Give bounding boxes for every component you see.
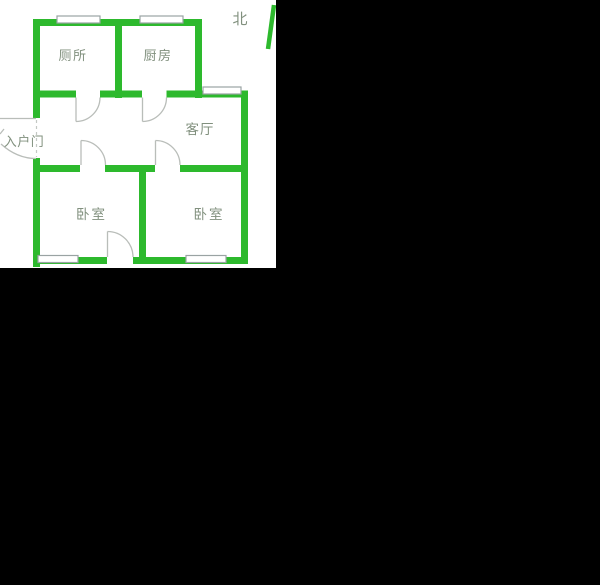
wall-segment [33,19,40,118]
room-label-bedroom-right: 卧室 [194,206,225,223]
wall-segment [33,165,80,172]
floorplan-image: 厕所 厨房 客厅 入户门 卧室 卧室 北 [0,0,276,268]
door-swing [76,98,100,122]
room-label-toilet: 厕所 [58,49,87,64]
room-label-bedroom-left: 卧室 [76,206,107,223]
north-arrow-line [268,5,274,49]
door-swing [108,232,134,258]
wall-segment [33,158,40,267]
door-swing [81,141,106,166]
window-marker [57,16,100,23]
doors [0,98,180,258]
window-marker [140,16,183,23]
door-swing [143,98,167,122]
wall-segment [241,91,248,265]
window-marker [186,256,226,263]
room-labels: 厕所 厨房 客厅 入户门 卧室 卧室 北 [4,10,248,223]
room-label-living-room: 客厅 [186,121,215,138]
clipped-text-fragment [0,129,4,134]
door-swing [156,141,181,166]
window-marker [38,256,78,263]
wall-segment [33,91,76,98]
north-label: 北 [232,10,247,28]
wall-segment [139,165,146,264]
wall-segment [115,19,122,98]
screenshot-canvas: 厕所 厨房 客厅 入户门 卧室 卧室 北 [0,0,600,585]
room-label-entrance: 入户门 [4,134,45,150]
window-marker [203,87,241,94]
wall-segment [195,19,202,98]
wall-segment [180,165,248,172]
room-label-kitchen: 厨房 [143,48,172,64]
wall-segment [100,91,142,98]
wall-segment [105,165,155,172]
